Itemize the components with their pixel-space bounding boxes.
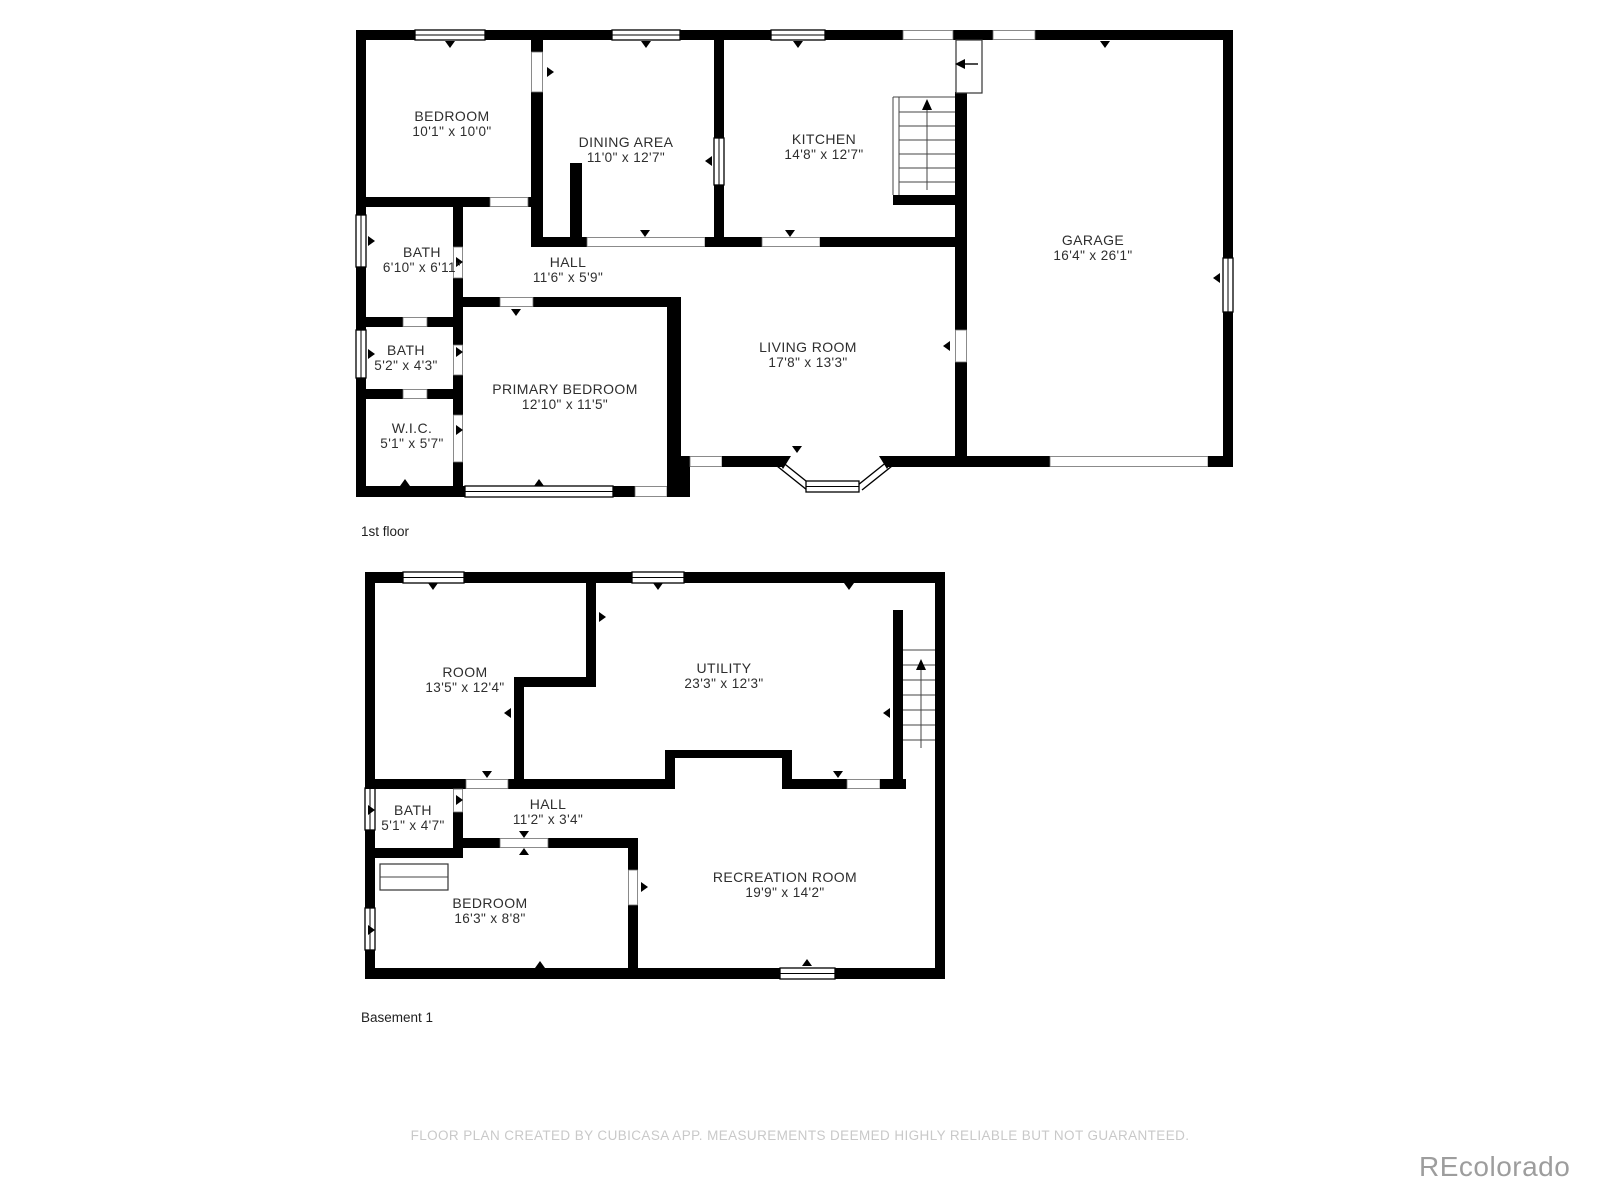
room-label-primary-bedroom: PRIMARY BEDROOM 12'10" x 11'5" xyxy=(492,381,638,413)
room-name: KITCHEN xyxy=(784,131,863,147)
window xyxy=(356,215,366,267)
room-dimensions: 5'1" x 4'7" xyxy=(381,818,444,834)
room-name: BATH xyxy=(374,342,437,358)
room-label-bath-1f: BATH 6'10" x 6'11" xyxy=(383,244,461,276)
first-floor-caption: 1st floor xyxy=(361,524,409,539)
room-dimensions: 13'5" x 12'4" xyxy=(425,680,504,696)
room-label-bedroom-1f: BEDROOM 10'1" x 10'0" xyxy=(412,108,491,140)
recolorado-watermark: REcolorado xyxy=(1419,1151,1570,1183)
room-dimensions: 11'6" x 5'9" xyxy=(533,270,603,286)
room-label-hall-1f: HALL 11'6" x 5'9" xyxy=(533,254,603,286)
room-dimensions: 17'8" x 13'3" xyxy=(759,355,857,371)
window xyxy=(403,572,464,583)
room-dimensions: 5'1" x 5'7" xyxy=(380,436,443,452)
bay-window xyxy=(775,456,895,492)
entry-door xyxy=(955,40,982,93)
room-name: LIVING ROOM xyxy=(759,339,857,355)
room-name: DINING AREA xyxy=(579,134,674,150)
window xyxy=(632,572,684,583)
room-dimensions: 19'9" x 14'2" xyxy=(713,885,857,901)
staircase-basement xyxy=(893,610,935,789)
floor-plan-drawing xyxy=(0,0,1600,1200)
room-label-hall-bsmt: HALL 11'2" x 3'4" xyxy=(513,796,583,828)
window xyxy=(771,30,825,40)
room-label-recreation-room: RECREATION ROOM 19'9" x 14'2" xyxy=(713,869,857,901)
staircase-first-floor xyxy=(893,92,967,247)
room-label-wic: W.I.C. 5'1" x 5'7" xyxy=(380,420,443,452)
room-label-bedroom-bsmt: BEDROOM 16'3" x 8'8" xyxy=(452,895,527,927)
room-dimensions: 11'2" x 3'4" xyxy=(513,812,583,828)
room-label-room-bsmt: ROOM 13'5" x 12'4" xyxy=(425,664,504,696)
room-name: BATH xyxy=(383,244,461,260)
window xyxy=(465,486,613,497)
room-name: PRIMARY BEDROOM xyxy=(492,381,638,397)
floor-plan-page: BEDROOM 10'1" x 10'0" DINING AREA 11'0" … xyxy=(0,0,1600,1200)
room-dimensions: 16'3" x 8'8" xyxy=(452,911,527,927)
room-dimensions: 23'3" x 12'3" xyxy=(684,676,763,692)
room-label-utility: UTILITY 23'3" x 12'3" xyxy=(684,660,763,692)
room-name: W.I.C. xyxy=(380,420,443,436)
room-name: BEDROOM xyxy=(452,895,527,911)
basement-caption: Basement 1 xyxy=(361,1010,433,1025)
room-label-dining-area: DINING AREA 11'0" x 12'7" xyxy=(579,134,674,166)
room-name: RECREATION ROOM xyxy=(713,869,857,885)
room-label-garage: GARAGE 16'4" x 26'1" xyxy=(1053,232,1132,264)
room-label-living-room: LIVING ROOM 17'8" x 13'3" xyxy=(759,339,857,371)
room-label-bath2-1f: BATH 5'2" x 4'3" xyxy=(374,342,437,374)
room-name: BEDROOM xyxy=(412,108,491,124)
closet xyxy=(380,864,448,890)
window xyxy=(1223,258,1233,312)
room-name: UTILITY xyxy=(684,660,763,676)
room-name: HALL xyxy=(533,254,603,270)
window xyxy=(415,30,485,40)
room-name: GARAGE xyxy=(1053,232,1132,248)
room-label-bath-bsmt: BATH 5'1" x 4'7" xyxy=(381,802,444,834)
room-dimensions: 5'2" x 4'3" xyxy=(374,358,437,374)
room-dimensions: 16'4" x 26'1" xyxy=(1053,248,1132,264)
window xyxy=(356,330,366,378)
room-dimensions: 12'10" x 11'5" xyxy=(492,397,638,413)
window xyxy=(612,30,680,40)
room-label-kitchen: KITCHEN 14'8" x 12'7" xyxy=(784,131,863,163)
room-dimensions: 14'8" x 12'7" xyxy=(784,147,863,163)
room-name: BATH xyxy=(381,802,444,818)
room-name: ROOM xyxy=(425,664,504,680)
room-dimensions: 11'0" x 12'7" xyxy=(579,150,674,166)
room-name: HALL xyxy=(513,796,583,812)
pass-through-window xyxy=(714,138,724,185)
room-dimensions: 6'10" x 6'11" xyxy=(383,260,461,276)
room-dimensions: 10'1" x 10'0" xyxy=(412,124,491,140)
disclaimer-text: FLOOR PLAN CREATED BY CUBICASA APP. MEAS… xyxy=(0,1128,1600,1143)
window xyxy=(780,968,835,979)
